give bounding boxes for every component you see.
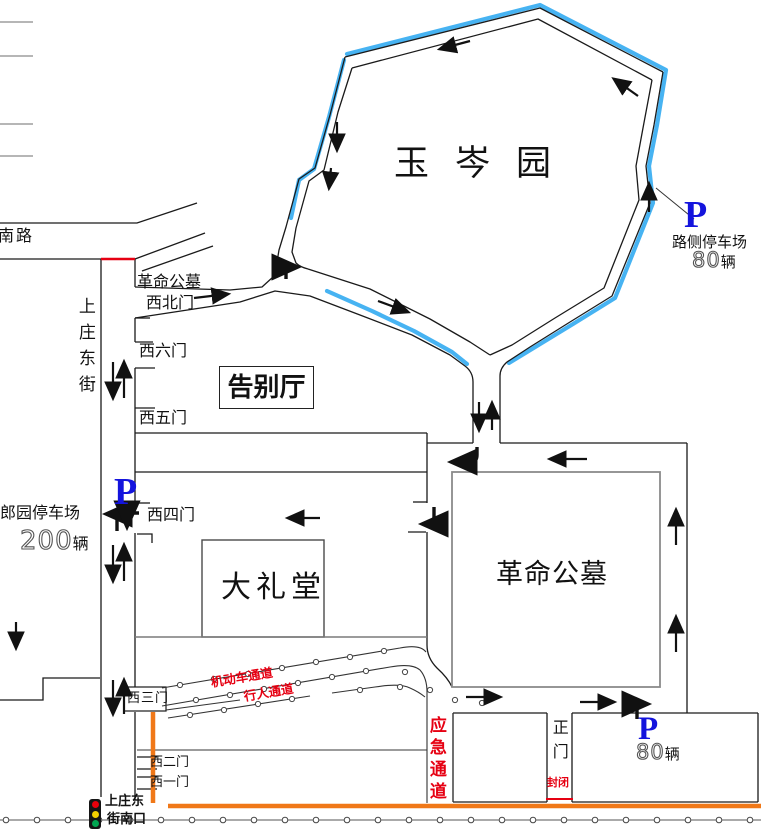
traffic-light-green <box>92 820 99 827</box>
gate-west5-label: 西五门 <box>139 411 187 428</box>
langyuan-parking-name: 郎园停车场 <box>0 506 80 523</box>
roadside-parking-capacity: 80辆 <box>692 249 736 272</box>
great-hall-label: 大礼堂 <box>221 572 326 604</box>
access-channels <box>162 647 453 803</box>
nw-gate-label-line1: 革命公墓 <box>137 275 201 292</box>
edge-road-stubs <box>0 22 33 156</box>
gate-west4-label: 西四门 <box>147 508 195 525</box>
roadside-parking-capacity-number: 80 <box>692 248 721 272</box>
gate-west6-label: 西六门 <box>139 344 187 361</box>
traffic-flow-arrows <box>16 41 676 714</box>
traffic-light-icon <box>89 799 101 829</box>
cemetery-traffic-map: 玉岑园 P 路侧停车场 80辆 南路 上庄东街 革命公墓 西北门 西六门 西五门… <box>0 0 761 835</box>
traffic-light-yellow <box>92 811 99 818</box>
main-gate-label: 正门 <box>549 719 566 767</box>
red-closure-marks <box>101 259 573 799</box>
langyuan-parking-capacity-unit: 辆 <box>73 536 89 553</box>
route-strip-top-right <box>347 5 666 363</box>
intersection-label-line2: 街南口 <box>107 812 146 826</box>
nanlu-street-label: 南路 <box>0 229 34 246</box>
turn-icon-nw-junction <box>286 267 297 279</box>
turn-icon-west-corridor <box>423 507 434 524</box>
nw-gate-label-line2: 西北门 <box>146 296 194 313</box>
langyuan-parking-capacity: 200辆 <box>20 528 89 555</box>
park-name-label: 玉岑园 <box>394 146 577 183</box>
turn-icon-west4-a <box>107 514 117 531</box>
emergency-lane-label: 应急通道 <box>427 716 445 804</box>
south-parking-capacity-number: 80 <box>636 740 665 764</box>
gate-west1-label: 西一门 <box>150 775 189 789</box>
south-parking-capacity: 80辆 <box>636 741 680 764</box>
roadside-parking-symbol: P <box>684 196 707 236</box>
cemetery-label: 革命公墓 <box>496 560 608 588</box>
langyuan-parking-symbol: P <box>114 473 137 513</box>
langyuan-parking-capacity-number: 200 <box>20 526 73 556</box>
farewell-hall-label: 告别厅 <box>227 374 305 401</box>
roadside-parking-capacity-unit: 辆 <box>721 255 736 271</box>
shangzhuang-street-label: 上庄东街 <box>76 297 94 401</box>
map-geometry <box>0 0 761 835</box>
turn-icon-west4-b <box>127 513 139 526</box>
south-parking-capacity-unit: 辆 <box>665 747 680 763</box>
intersection-label-line1: 上庄东 <box>105 794 144 808</box>
turn-icon-north-road <box>452 447 477 462</box>
ring-road <box>135 8 663 443</box>
turn-arrow-icons <box>107 267 647 719</box>
gate-west2-label: 西二门 <box>150 755 189 769</box>
gate-west3-label: 西三门 <box>127 691 169 705</box>
farewell-hall-box: 告别厅 <box>219 366 314 409</box>
traffic-light-red <box>92 801 99 808</box>
main-gate-status-label: 封闭 <box>547 778 569 790</box>
